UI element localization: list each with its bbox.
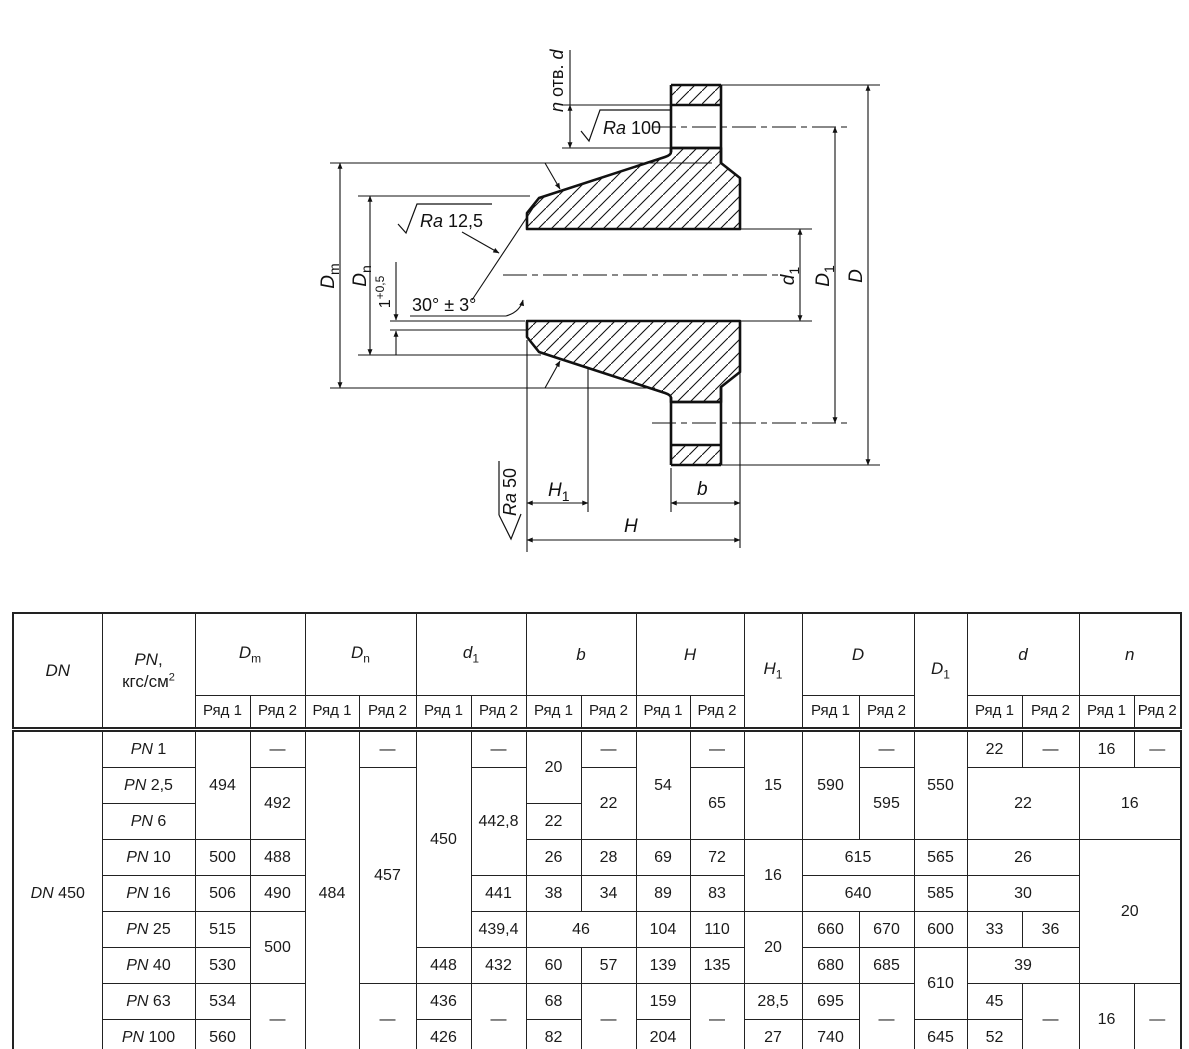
table-cell: — [359, 730, 416, 768]
table-cell: 530 [195, 948, 250, 984]
table-cell: 26 [967, 840, 1079, 876]
table-cell: 695 [802, 984, 859, 1020]
table-cell: 22 [526, 804, 581, 840]
leader-Dm-bottom [545, 361, 560, 388]
label-Dn: Dn [350, 265, 374, 287]
table-cell: 448 [416, 948, 471, 984]
table-cell: 57 [581, 948, 636, 984]
col-header-Dn: Dn [305, 613, 416, 696]
table-cell: 33 [967, 912, 1022, 948]
table-cell: 500 [195, 840, 250, 876]
bolt-rim-upper-cap [671, 85, 721, 105]
subheader-H-row1: Ряд 1 [636, 696, 690, 730]
table-cell: — [1134, 730, 1181, 768]
table-cell: 60 [526, 948, 581, 984]
table-cell: 15 [744, 730, 802, 840]
table-cell: 30 [967, 876, 1079, 912]
col-header-DN: DN [13, 613, 102, 730]
table-cell: 439,4 [471, 912, 526, 948]
table-cell: DN 450 [13, 730, 102, 1049]
table-cell: 590 [802, 730, 859, 840]
table-cell: — [471, 730, 526, 768]
subheader-d-row2: Ряд 2 [1022, 696, 1079, 730]
table-cell: 16 [744, 840, 802, 912]
table-cell: 670 [859, 912, 914, 948]
table-cell: 20 [526, 730, 581, 804]
subheader-d1-row1: Ряд 1 [416, 696, 471, 730]
table-cell: 22 [967, 730, 1022, 768]
subheader-Dn-row1: Ряд 1 [305, 696, 359, 730]
flange-upper-section [527, 148, 740, 229]
table-cell: 740 [802, 1020, 859, 1049]
table-cell: — [859, 984, 914, 1049]
table-cell: 640 [802, 876, 914, 912]
table-cell: — [690, 730, 744, 768]
label-d1: d1 [778, 267, 802, 286]
table-cell: 28,5 [744, 984, 802, 1020]
table-cell: 83 [690, 876, 744, 912]
table-cell: 54 [636, 730, 690, 840]
subheader-n-row2: Ряд 2 [1134, 696, 1181, 730]
table-cell: 159 [636, 984, 690, 1020]
table-cell: 494 [195, 730, 250, 840]
table-cell: 46 [526, 912, 636, 948]
subheader-Dm-row1: Ряд 1 [195, 696, 250, 730]
table-cell: PN 16 [102, 876, 195, 912]
table-cell: PN 100 [102, 1020, 195, 1049]
table-cell: 441 [471, 876, 526, 912]
table-cell: PN 10 [102, 840, 195, 876]
table-cell: — [359, 984, 416, 1049]
table-cell: 645 [914, 1020, 967, 1049]
table-cell: 26 [526, 840, 581, 876]
table-cell: 492 [250, 768, 305, 840]
table-cell: 16 [1079, 984, 1134, 1049]
table-cell: PN 40 [102, 948, 195, 984]
leader-Dm-top [545, 163, 560, 189]
table-cell: — [250, 730, 305, 768]
table-cell: 442,8 [471, 768, 526, 876]
label-n-holes-d: n отв. d [547, 49, 567, 112]
label-ra50: Ra 50 [500, 468, 520, 516]
subheader-D-row2: Ряд 2 [859, 696, 914, 730]
table-cell: PN 1 [102, 730, 195, 768]
table-cell: — [581, 984, 636, 1049]
table-cell: 68 [526, 984, 581, 1020]
table-cell: 585 [914, 876, 967, 912]
subheader-b-row1: Ряд 1 [526, 696, 581, 730]
table-cell: 20 [1079, 840, 1181, 984]
table-cell: 28 [581, 840, 636, 876]
table-cell: PN 6 [102, 804, 195, 840]
subheader-d-row1: Ряд 1 [967, 696, 1022, 730]
table-cell: 565 [914, 840, 967, 876]
table-cell: 615 [802, 840, 914, 876]
label-H: H [624, 516, 638, 537]
label-D: D [846, 269, 867, 283]
table-cell: 82 [526, 1020, 581, 1049]
table-cell: 685 [859, 948, 914, 984]
table-cell: 110 [690, 912, 744, 948]
dimensions-table: DN PN, кгс/см2 Dm Dn d1 b H H1 D D1 d n … [12, 612, 1182, 1049]
table-cell: 426 [416, 1020, 471, 1049]
col-header-n: n [1079, 613, 1181, 696]
table-cell: — [690, 984, 744, 1049]
table-cell: 135 [690, 948, 744, 984]
col-header-H1: H1 [744, 613, 802, 730]
table-cell: 20 [744, 912, 802, 984]
table-cell: 534 [195, 984, 250, 1020]
table-cell: 16 [1079, 730, 1134, 768]
table-cell: 484 [305, 730, 359, 1049]
table-cell: 27 [744, 1020, 802, 1049]
table-cell: 65 [690, 768, 744, 840]
table-cell: 45 [967, 984, 1022, 1020]
table-cell: — [859, 730, 914, 768]
table-cell: — [581, 730, 636, 768]
table-cell: PN 25 [102, 912, 195, 948]
col-header-PN: PN, кгс/см2 [102, 613, 195, 730]
bolt-rim-lower-cap [671, 445, 721, 465]
table-body: DN 450PN 1494—484—450—20—54—15590—55022—… [13, 730, 1181, 1049]
col-header-D: D [802, 613, 914, 696]
table-cell: 560 [195, 1020, 250, 1049]
flange-drawing: n отв. d Ra 100 Ra 12,5 Ra 50 30° ± 3° 1… [0, 0, 1189, 600]
col-header-d: d [967, 613, 1079, 696]
table-cell: 436 [416, 984, 471, 1020]
col-header-Dm: Dm [195, 613, 305, 696]
table-cell: PN 2,5 [102, 768, 195, 804]
col-header-D1: D1 [914, 613, 967, 730]
table-cell: 457 [359, 768, 416, 984]
col-header-H: H [636, 613, 744, 696]
subheader-Dn-row2: Ряд 2 [359, 696, 416, 730]
table-cell: 680 [802, 948, 859, 984]
table-cell: 69 [636, 840, 690, 876]
table-cell: 39 [967, 948, 1079, 984]
table-cell: 432 [471, 948, 526, 984]
table-cell: 38 [526, 876, 581, 912]
label-ra125: Ra 12,5 [420, 211, 483, 231]
table-cell: 595 [859, 768, 914, 840]
gost-flange-standard-page: n отв. d Ra 100 Ra 12,5 Ra 50 30° ± 3° 1… [0, 0, 1189, 1049]
col-header-b: b [526, 613, 636, 696]
table-cell: 450 [416, 730, 471, 948]
table-cell: 22 [581, 768, 636, 840]
drawing-labels: n отв. d Ra 100 Ra 12,5 Ra 50 30° ± 3° 1… [318, 49, 867, 537]
flange-lower-section [527, 321, 740, 402]
subheader-d1-row2: Ряд 2 [471, 696, 526, 730]
table-cell: 104 [636, 912, 690, 948]
table-cell: 600 [914, 912, 967, 948]
table-cell: 610 [914, 948, 967, 1020]
subheader-D-row1: Ряд 1 [802, 696, 859, 730]
subheader-H-row2: Ряд 2 [690, 696, 744, 730]
table-cell: 72 [690, 840, 744, 876]
table-cell: 52 [967, 1020, 1022, 1049]
table-cell: — [250, 984, 305, 1049]
label-ra100: Ra 100 [603, 118, 661, 138]
table-cell: 139 [636, 948, 690, 984]
label-H1: H1 [548, 480, 570, 504]
label-land: 1+0,5 [373, 275, 394, 308]
table-cell: 660 [802, 912, 859, 948]
label-Dm: Dm [318, 263, 342, 288]
leader-Ra125 [462, 232, 499, 253]
leader-angle [506, 300, 523, 316]
table-cell: 488 [250, 840, 305, 876]
table-cell: 36 [1022, 912, 1079, 948]
col-header-d1: d1 [416, 613, 526, 696]
table-cell: — [1022, 730, 1079, 768]
table-cell: 490 [250, 876, 305, 912]
label-D1: D1 [813, 265, 837, 287]
table-cell: 89 [636, 876, 690, 912]
table-cell: — [471, 984, 526, 1049]
table-cell: 515 [195, 912, 250, 948]
table-cell: — [1134, 984, 1181, 1049]
subheader-b-row2: Ряд 2 [581, 696, 636, 730]
table-cell: — [1022, 984, 1079, 1049]
table-cell: PN 63 [102, 984, 195, 1020]
table-cell: 506 [195, 876, 250, 912]
table-cell: 16 [1079, 768, 1181, 840]
table-cell: 204 [636, 1020, 690, 1049]
table-cell: 34 [581, 876, 636, 912]
table-cell: 500 [250, 912, 305, 984]
table-cell: 22 [967, 768, 1079, 840]
subheader-n-row1: Ряд 1 [1079, 696, 1134, 730]
label-b: b [697, 479, 708, 500]
table-cell: 550 [914, 730, 967, 840]
subheader-Dm-row2: Ряд 2 [250, 696, 305, 730]
label-angle: 30° ± 3° [412, 295, 476, 315]
